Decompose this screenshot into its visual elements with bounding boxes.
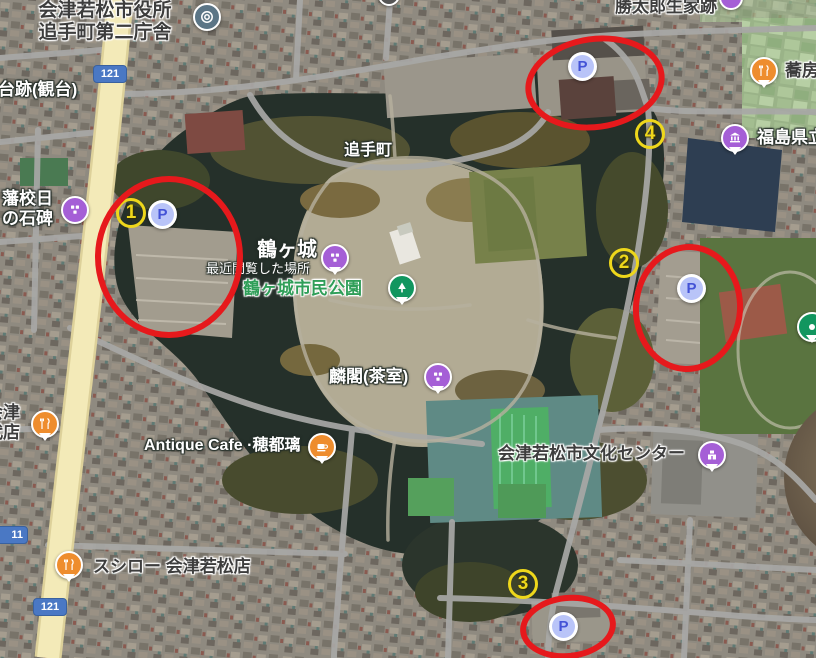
- aizu-shop-line1: 会津: [0, 403, 20, 423]
- monument-icon[interactable]: [61, 196, 89, 224]
- poi-label-observation-site[interactable]: 台跡(観台): [0, 80, 77, 100]
- poi-label-antique-cafe[interactable]: Antique Cafe ·穂都璃: [144, 437, 300, 455]
- poi-label-fukushima-prefectural[interactable]: 福島県立: [757, 128, 816, 148]
- government-office-icon[interactable]: [193, 3, 221, 31]
- city-hall-line2: 追手町第二庁舎: [22, 22, 188, 44]
- poi-label-hanko-monument[interactable]: 藩校日 の石碑: [2, 189, 53, 228]
- aizu-shop-line2: 代店: [0, 423, 20, 443]
- poi-label-sushiro[interactable]: スシロー 会津若松店: [93, 557, 251, 577]
- route-badge-11-left: 11: [0, 526, 28, 544]
- poi-label-katsutaro-site[interactable]: 勝太郎生家跡: [615, 0, 717, 17]
- annotation-number-3: 3: [508, 569, 538, 599]
- route-badge-121-bottom: 121: [33, 598, 67, 616]
- restaurant-icon-soba[interactable]: [750, 57, 778, 85]
- tea-house-icon[interactable]: [424, 363, 452, 391]
- poi-label-citizen-park[interactable]: 鶴ヶ城市民公園: [243, 279, 362, 299]
- castle-icon[interactable]: [321, 244, 349, 272]
- annotation-number-4: 4: [635, 119, 665, 149]
- museum-icon[interactable]: [721, 124, 749, 152]
- street-label-otemachi[interactable]: 追手町: [344, 142, 392, 160]
- hanko-line1: 藩校日: [2, 189, 53, 209]
- annotation-number-2: 2: [609, 248, 639, 278]
- cafe-icon[interactable]: [308, 433, 336, 461]
- poi-label-culture-center[interactable]: 会津若松市文化センター: [498, 444, 685, 464]
- annotation-circle-west-parking: [95, 176, 243, 338]
- poi-label-tsurugajo[interactable]: 鶴ヶ城: [257, 239, 317, 262]
- poi-label-rinkaku[interactable]: 麟閣(茶室): [329, 367, 408, 387]
- poi-label-city-hall[interactable]: 会津若松市役所 追手町第二庁舎: [22, 0, 188, 44]
- poi-label-soba[interactable]: 蕎房: [785, 61, 816, 81]
- public-hall-icon[interactable]: [698, 441, 726, 469]
- satellite-map[interactable]: 会津若松市役所 追手町第二庁舎 勝太郎生家跡 台跡(観台) 藩校日 の石碑 追手…: [0, 0, 816, 658]
- restaurant-icon-left[interactable]: [31, 410, 59, 438]
- poi-label-aizu-shop[interactable]: 会津 代店: [0, 403, 20, 442]
- city-hall-line1: 会津若松市役所: [22, 0, 188, 22]
- hanko-line2: の石碑: [2, 209, 53, 229]
- restaurant-icon-sushiro[interactable]: [55, 551, 83, 579]
- park-tree-icon[interactable]: [388, 274, 416, 302]
- route-badge-121-top: 121: [93, 65, 127, 83]
